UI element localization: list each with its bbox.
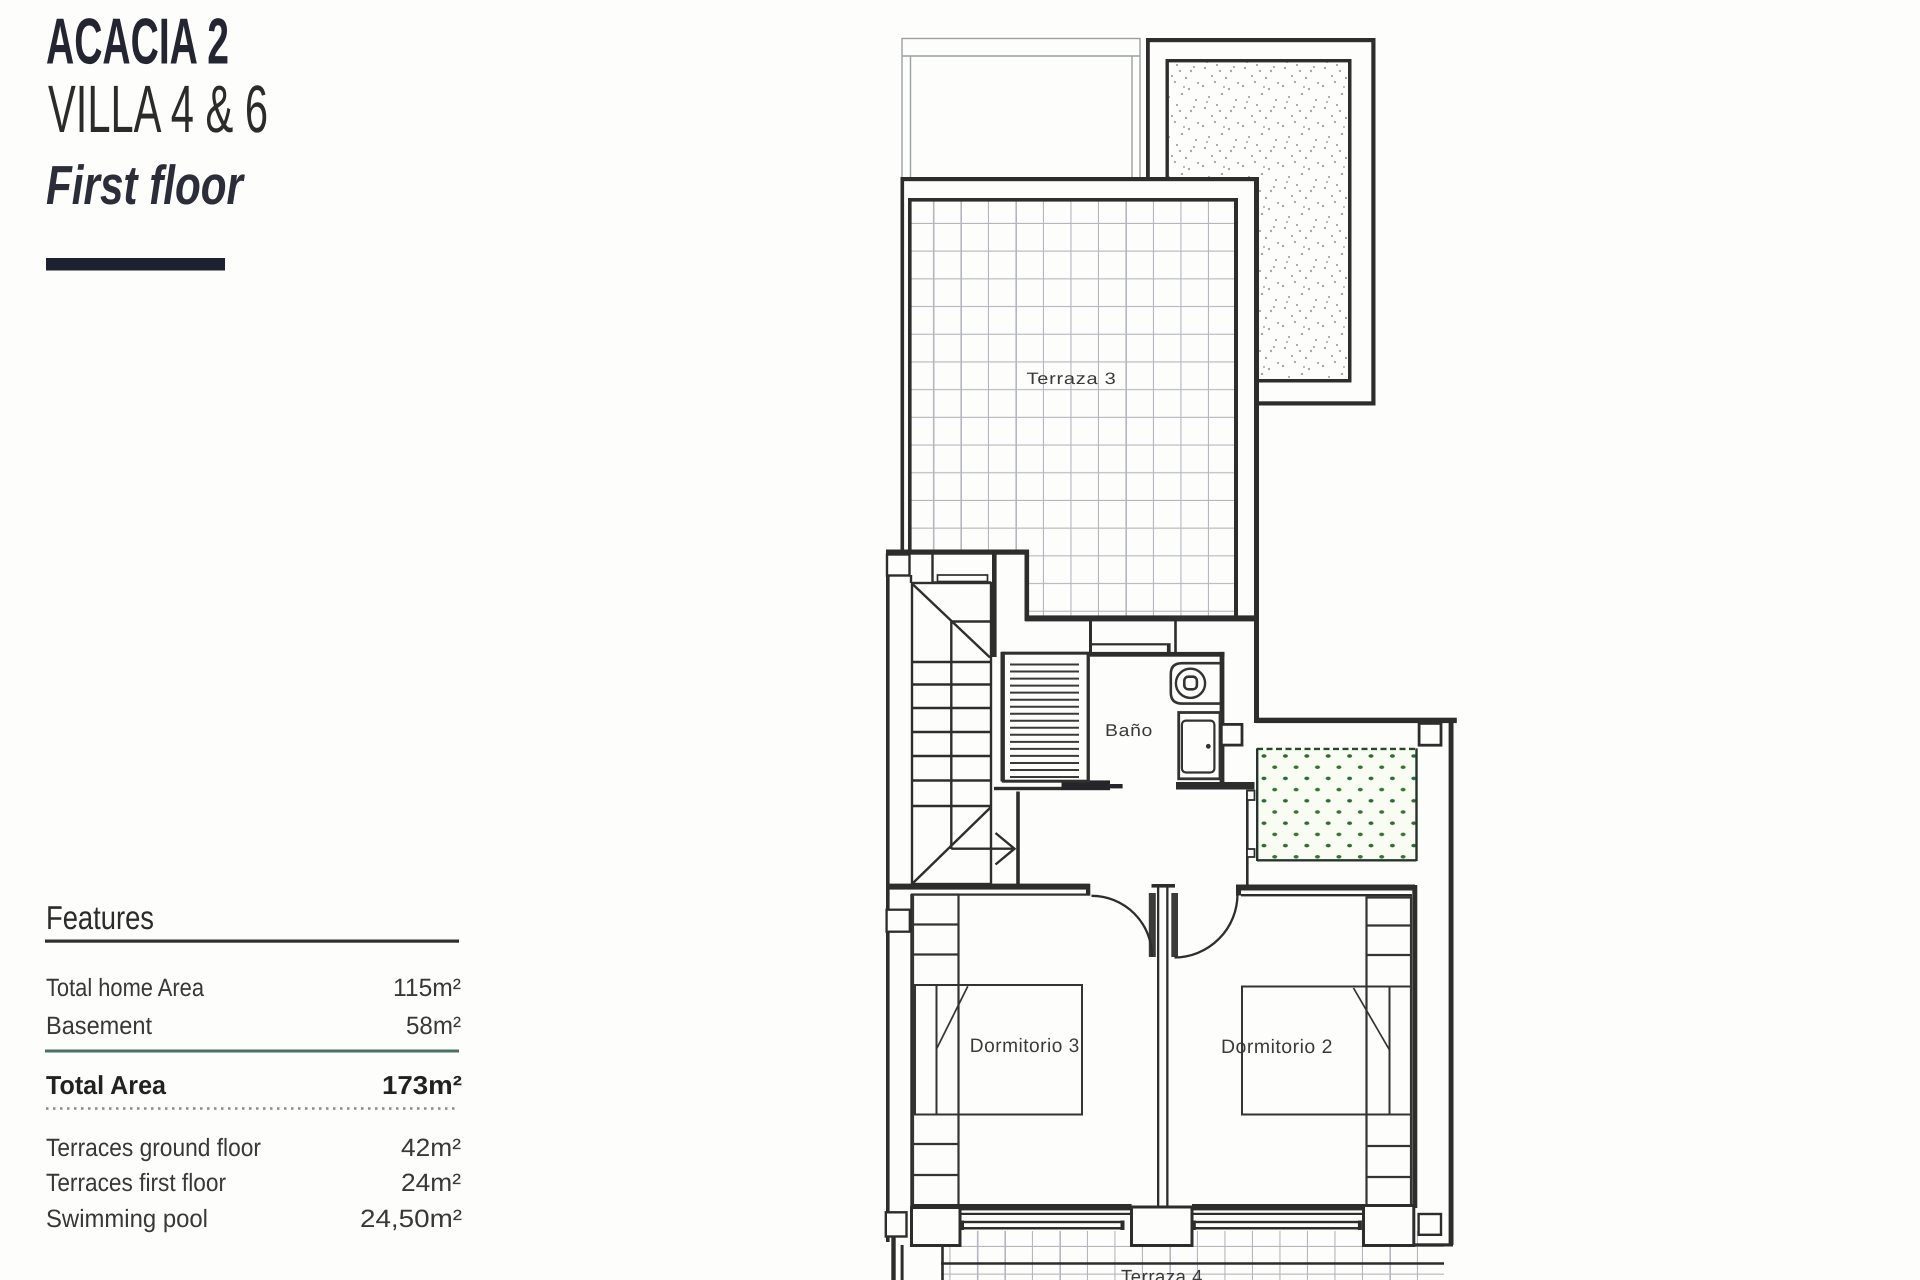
svg-text:Terraces ground floor: Terraces ground floor (46, 1134, 261, 1162)
svg-text:58m²: 58m² (406, 1012, 461, 1040)
svg-text:115m²: 115m² (393, 974, 461, 1002)
svg-text:Swimming pool: Swimming pool (46, 1205, 208, 1233)
svg-text:Terraza 4: Terraza 4 (1121, 1267, 1203, 1280)
svg-text:24m²: 24m² (401, 1169, 461, 1197)
svg-text:Basement: Basement (46, 1012, 152, 1040)
svg-text:Dormitorio 2: Dormitorio 2 (1221, 1036, 1333, 1058)
svg-text:VILLA 4 & 6: VILLA 4 & 6 (48, 72, 268, 147)
svg-text:Total home Area: Total home Area (46, 974, 204, 1002)
svg-text:Terraza 3: Terraza 3 (1027, 370, 1117, 388)
svg-text:42m²: 42m² (401, 1134, 461, 1162)
svg-text:24,50m²: 24,50m² (360, 1205, 462, 1233)
svg-text:Baño: Baño (1105, 721, 1153, 740)
svg-text:Dormitorio 3: Dormitorio 3 (970, 1035, 1080, 1057)
svg-text:Features: Features (46, 899, 154, 936)
svg-text:173m²: 173m² (382, 1070, 462, 1100)
svg-text:ACACIA 2: ACACIA 2 (46, 5, 229, 78)
svg-text:First floor: First floor (46, 154, 245, 216)
svg-text:Terraces first floor: Terraces first floor (46, 1169, 226, 1197)
svg-text:Total Area: Total Area (46, 1070, 167, 1100)
